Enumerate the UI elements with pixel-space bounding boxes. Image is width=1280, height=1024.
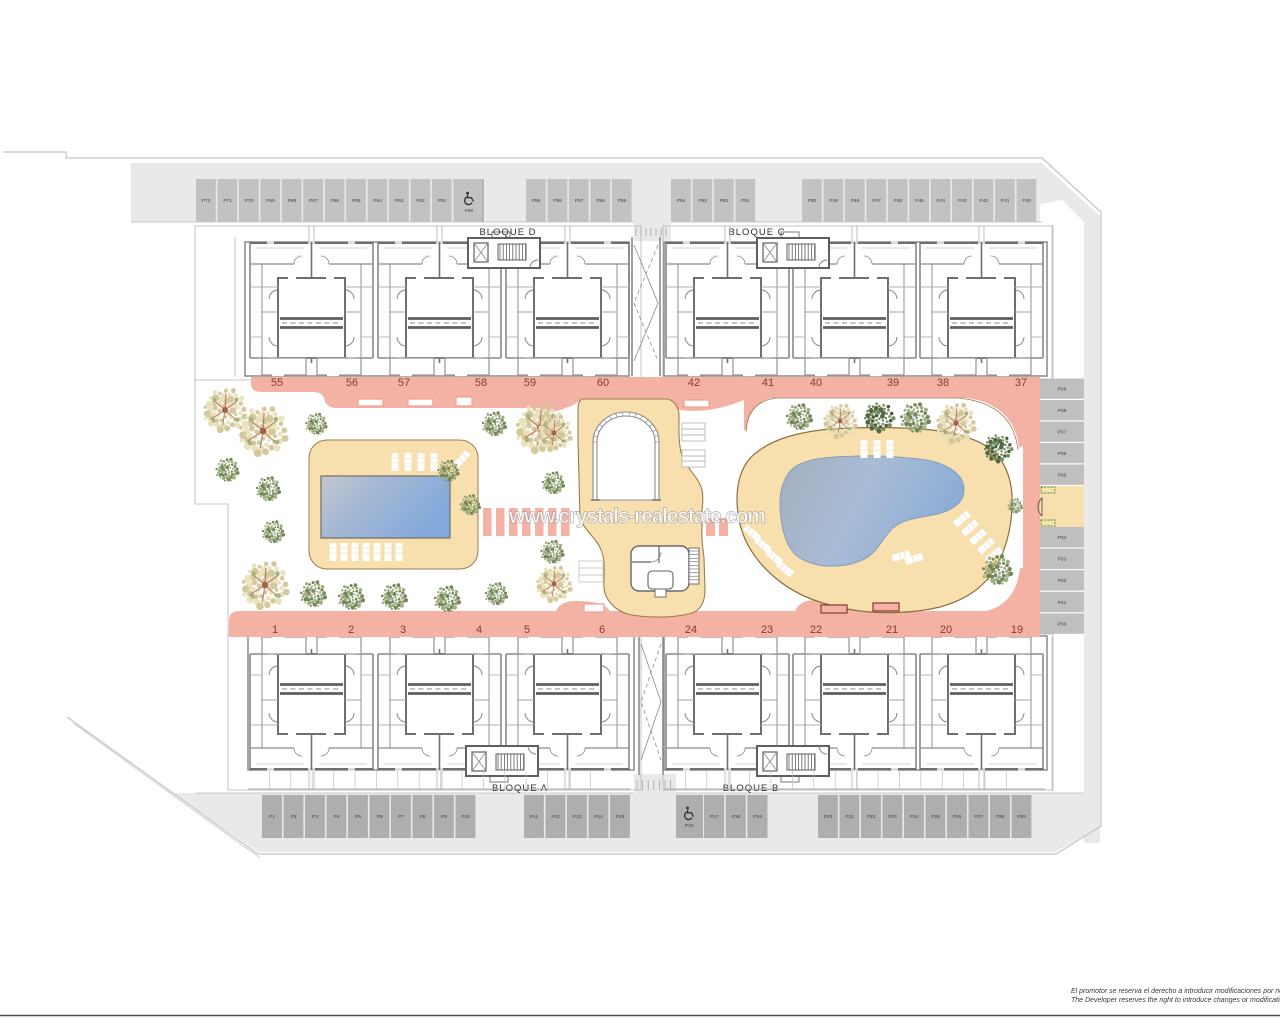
svg-text:P24: P24 xyxy=(910,814,919,820)
svg-text:6: 6 xyxy=(599,624,605,636)
svg-text:P41: P41 xyxy=(1001,198,1010,204)
svg-text:P10: P10 xyxy=(461,814,470,820)
svg-text:21: 21 xyxy=(886,624,898,636)
svg-text:5: 5 xyxy=(524,624,530,636)
svg-text:P34: P34 xyxy=(1058,535,1067,541)
svg-text:39: 39 xyxy=(887,377,899,389)
svg-text:P4: P4 xyxy=(334,814,340,820)
svg-text:1: 1 xyxy=(272,624,278,636)
svg-text:P40: P40 xyxy=(1022,198,1031,204)
svg-text:P12: P12 xyxy=(551,814,560,820)
svg-text:P63: P63 xyxy=(395,198,404,204)
svg-text:P32: P32 xyxy=(1058,578,1067,584)
svg-text:P42: P42 xyxy=(979,198,988,204)
svg-text:P67: P67 xyxy=(309,198,318,204)
svg-text:P23: P23 xyxy=(888,814,897,820)
svg-text:41: 41 xyxy=(762,377,774,389)
svg-text:P9: P9 xyxy=(441,814,447,820)
svg-text:60: 60 xyxy=(597,377,609,389)
svg-text:23: 23 xyxy=(761,624,773,636)
svg-text:20: 20 xyxy=(940,624,952,636)
svg-text:38: 38 xyxy=(937,377,949,389)
svg-text:P13: P13 xyxy=(573,814,582,820)
svg-text:40: 40 xyxy=(810,377,822,389)
svg-text:P11: P11 xyxy=(530,814,539,820)
svg-text:P2: P2 xyxy=(291,814,297,820)
svg-text:P49: P49 xyxy=(829,198,838,204)
svg-text:P16: P16 xyxy=(685,823,694,828)
svg-text:P46: P46 xyxy=(894,198,903,204)
svg-text:P59: P59 xyxy=(532,198,541,204)
svg-text:The Developer reserves the rig: The Developer reserves the right to intr… xyxy=(1071,997,1280,1004)
svg-text:P31: P31 xyxy=(1058,600,1067,606)
svg-text:P53: P53 xyxy=(698,198,707,204)
svg-text:P29: P29 xyxy=(1017,814,1026,820)
svg-text:P69: P69 xyxy=(266,198,275,204)
svg-text:P43: P43 xyxy=(958,198,967,204)
svg-text:P55: P55 xyxy=(618,198,627,204)
svg-text:P36: P36 xyxy=(1058,451,1067,457)
svg-text:P56: P56 xyxy=(596,198,605,204)
svg-text:P50: P50 xyxy=(808,198,817,204)
svg-text:P26: P26 xyxy=(953,814,962,820)
svg-text:P48: P48 xyxy=(851,198,860,204)
svg-text:57: 57 xyxy=(398,377,410,389)
svg-text:4: 4 xyxy=(476,624,482,636)
svg-text:59: 59 xyxy=(524,377,536,389)
svg-text:P71: P71 xyxy=(223,198,232,204)
svg-text:P45: P45 xyxy=(915,198,924,204)
svg-text:El promotor se reserva el dere: El promotor se reserva el derecho a intr… xyxy=(1071,988,1280,995)
svg-text:P19: P19 xyxy=(753,814,762,820)
svg-text:19: 19 xyxy=(1011,624,1023,636)
svg-text:P70: P70 xyxy=(245,198,254,204)
svg-text:P72: P72 xyxy=(202,198,211,204)
svg-text:24: 24 xyxy=(685,624,697,636)
svg-text:BLOQUE C: BLOQUE C xyxy=(728,227,785,238)
svg-text:P8: P8 xyxy=(420,814,426,820)
svg-text:P14: P14 xyxy=(594,814,603,820)
svg-text:56: 56 xyxy=(346,377,358,389)
svg-text:BLOQUE D: BLOQUE D xyxy=(479,227,536,238)
svg-text:P54: P54 xyxy=(677,198,686,204)
svg-text:P28: P28 xyxy=(996,814,1005,820)
svg-text:P27: P27 xyxy=(974,814,983,820)
svg-text:P60: P60 xyxy=(465,208,474,213)
svg-text:P33: P33 xyxy=(1058,557,1067,563)
svg-text:P3: P3 xyxy=(312,814,318,820)
svg-text:P5: P5 xyxy=(355,814,361,820)
svg-text:37: 37 xyxy=(1015,377,1027,389)
svg-text:2: 2 xyxy=(348,624,354,636)
svg-text:www.crystals-realestate.com: www.crystals-realestate.com xyxy=(508,505,766,528)
svg-text:P61: P61 xyxy=(438,198,447,204)
svg-text:P18: P18 xyxy=(732,814,741,820)
svg-text:P7: P7 xyxy=(398,814,404,820)
svg-text:P65: P65 xyxy=(352,198,361,204)
svg-text:P57: P57 xyxy=(575,198,584,204)
svg-text:P68: P68 xyxy=(288,198,297,204)
svg-text:P44: P44 xyxy=(937,198,946,204)
svg-text:3: 3 xyxy=(400,624,406,636)
svg-text:P66: P66 xyxy=(331,198,340,204)
svg-text:P21: P21 xyxy=(845,814,854,820)
svg-text:BLOQUE A: BLOQUE A xyxy=(492,783,548,794)
svg-text:55: 55 xyxy=(271,377,283,389)
svg-text:P6: P6 xyxy=(377,814,383,820)
svg-text:P17: P17 xyxy=(710,814,719,820)
svg-text:22: 22 xyxy=(810,624,822,636)
svg-text:P52: P52 xyxy=(720,198,729,204)
svg-text:P58: P58 xyxy=(553,198,562,204)
svg-text:P47: P47 xyxy=(872,198,881,204)
svg-text:P35: P35 xyxy=(1058,472,1067,478)
svg-text:P30: P30 xyxy=(1058,621,1067,627)
svg-text:P64: P64 xyxy=(373,198,382,204)
svg-text:P51: P51 xyxy=(741,198,750,204)
svg-text:P62: P62 xyxy=(416,198,425,204)
svg-text:P20: P20 xyxy=(824,814,833,820)
svg-text:P38: P38 xyxy=(1058,408,1067,414)
svg-text:P25: P25 xyxy=(931,814,940,820)
svg-text:42: 42 xyxy=(688,377,700,389)
svg-text:P15: P15 xyxy=(616,814,625,820)
svg-text:P37: P37 xyxy=(1058,429,1067,435)
svg-text:P1: P1 xyxy=(269,814,275,820)
svg-text:58: 58 xyxy=(475,377,487,389)
svg-text:P39: P39 xyxy=(1058,386,1067,392)
svg-text:P22: P22 xyxy=(867,814,876,820)
